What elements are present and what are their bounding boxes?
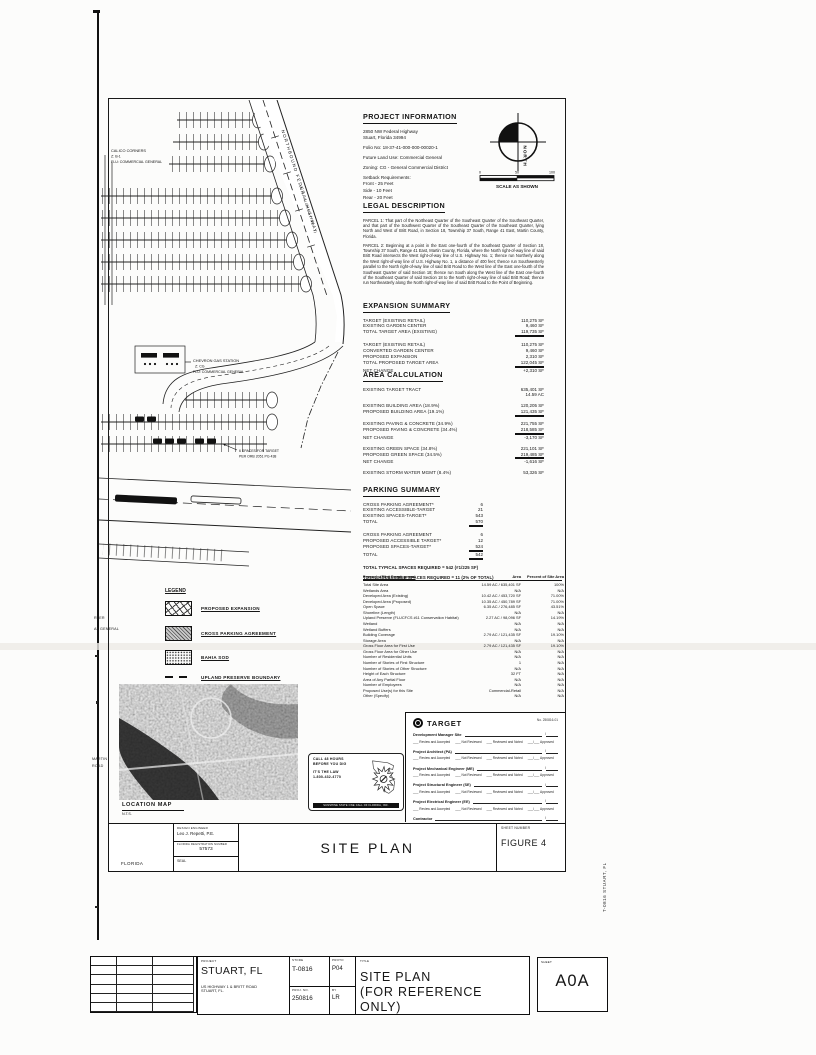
development-table: Property (Site) Development Area Percent… bbox=[363, 574, 562, 699]
revision-cell bbox=[153, 985, 194, 994]
summary-value: -1,616 SF bbox=[518, 459, 544, 465]
legal-description-section: LEGAL DESCRIPTION PARCEL 1: That part of… bbox=[363, 195, 544, 289]
summary-label: TOTAL bbox=[363, 519, 378, 527]
summary-group: EXISTING TARGET TRACT635,401 SF14.59 AC bbox=[363, 387, 544, 399]
scale-bar: 0 50 100 SCALE AS SHOWN bbox=[479, 171, 555, 190]
revision-cell bbox=[91, 985, 117, 994]
summary-group: EXISTING BUILDING AREA (18.9%)120,205 SF… bbox=[363, 403, 544, 417]
dev-table-row: Other (Specify)N/AN/A bbox=[363, 693, 562, 699]
north-arrow-icon: NORTH bbox=[490, 113, 546, 171]
revision-cell bbox=[153, 957, 194, 966]
calico-label-2: Z: B-1 bbox=[111, 155, 121, 159]
summary-label: EXISTING STORM WATER MGMT (8.4%) bbox=[363, 470, 451, 476]
location-map-caption: LOCATION MAP N.T.S. bbox=[122, 802, 184, 816]
summary-row: TOTAL TARGET AREA (EXISTING)119,735 SF bbox=[363, 329, 544, 337]
site-plan-drawing: NORTHBOUND FEDERAL HIGHWAY (U.S. HIGHWAY… bbox=[99, 100, 366, 592]
drawing-title-cell: TITLE SITE PLAN (FOR REFERENCE ONLY) bbox=[356, 957, 529, 1014]
summary-value: 121,435 SF bbox=[515, 409, 544, 417]
signoff-option: ___ Reviewed and Noted bbox=[487, 807, 523, 811]
scale-caption: SCALE AS SHOWN bbox=[496, 184, 539, 189]
sheet-id-box: SHEET A0A bbox=[537, 957, 608, 1012]
revision-cell bbox=[91, 957, 117, 966]
signoff-rows: Development Manager Site/___ Review and … bbox=[413, 733, 558, 828]
dev-header-percent: Percent of Site Area bbox=[524, 574, 564, 580]
revision-cell bbox=[91, 966, 117, 975]
revision-row bbox=[91, 1003, 196, 1012]
legend-item: PROPOSED EXPANSION bbox=[165, 601, 300, 616]
signoff-role-line: Development Manager Site/ bbox=[413, 733, 558, 737]
revision-row bbox=[91, 985, 196, 994]
signoff-role: Project Architect (PA) bbox=[413, 750, 452, 754]
revision-cell bbox=[153, 1003, 194, 1012]
summary-row: NET CHANGE-3,170 SF bbox=[363, 435, 544, 441]
scale-tick-50: 50 bbox=[515, 171, 519, 175]
legend-label: BAHIA SOD bbox=[201, 655, 229, 660]
revision-cell bbox=[91, 994, 117, 1003]
signoff-option: ___ Not Reviewed bbox=[455, 807, 481, 811]
signoff-role-line: Project Electrical Engineer (EE)/ bbox=[413, 800, 558, 804]
legend-item: UPLAND PRESERVE BOUNDARY bbox=[165, 675, 300, 680]
drawing-title-line1: SITE PLAN bbox=[360, 970, 525, 985]
store-cell: STORE T-0816 PROTO P04 PROJ. NO. 250816 … bbox=[290, 957, 356, 1014]
stipple-swatch bbox=[165, 650, 192, 665]
registration-label: FLORIDA REGISTRATION NUMBER bbox=[177, 843, 235, 846]
summary-value: -3,170 SF bbox=[518, 435, 544, 441]
legend-items: PROPOSED EXPANSIONCROSS PARKING AGREEMEN… bbox=[165, 601, 300, 680]
drawing-title-line2: (FOR REFERENCE ONLY) bbox=[360, 985, 525, 1015]
signoff-option: ___/___ Approved bbox=[528, 740, 554, 744]
diagonal-swatch bbox=[165, 626, 192, 641]
florida-sunburst-icon bbox=[363, 757, 401, 803]
north-label: NORTH bbox=[523, 146, 528, 167]
summary-group: CROSS PARKING AGREEMENT6PROPOSED ACCESSI… bbox=[363, 532, 483, 560]
signoff-option: ___ Reviewed and Noted bbox=[487, 773, 523, 777]
chevron-label-2: Z: CG bbox=[195, 365, 205, 369]
sheet-id-label: SHEET bbox=[541, 960, 604, 964]
signature-line bbox=[455, 752, 542, 754]
dev-header-area: Area bbox=[463, 574, 521, 580]
bottom-title-block: PROJECT STUART, FL US HIGHWAY 1 & BRITT … bbox=[197, 956, 530, 1015]
date-line bbox=[546, 819, 558, 821]
revision-row bbox=[91, 966, 196, 975]
dig-line-4: 1-800-432-4770 bbox=[313, 775, 363, 780]
registration-number: 57573 bbox=[177, 847, 235, 852]
dig-stamp-footer: SUNSHINE STATE ONE CALL OF FLORIDA, INC. bbox=[313, 803, 399, 808]
state-label: FLORIDA bbox=[121, 861, 143, 866]
sheet-number-cell: SHEET NUMBER FIGURE 4 bbox=[496, 824, 565, 871]
summary-label: PROPOSED BUILDING AREA (19.1%) bbox=[363, 409, 444, 417]
signoff-option: ___ Review and Accepted bbox=[413, 790, 450, 794]
revision-cell bbox=[117, 966, 153, 975]
signoff-role-line: Contractor/ bbox=[413, 817, 558, 821]
legend-label: UPLAND PRESERVE BOUNDARY bbox=[201, 675, 280, 680]
dev-row-label: Other (Specify) bbox=[363, 693, 460, 699]
britt-road bbox=[99, 478, 351, 566]
signoff-options: ___ Review and Accepted___ Not Reviewed_… bbox=[413, 807, 558, 811]
by-initials: LR bbox=[332, 995, 353, 1001]
dig-stamp-text: CALL 48 HOURS BEFORE YOU DIG IT'S THE LA… bbox=[313, 757, 363, 808]
summary-group: CROSS PARKING AGREEMENT*6EXISTING ACCESS… bbox=[363, 502, 483, 528]
date-line bbox=[546, 735, 558, 737]
summary-value: 53,326 SF bbox=[517, 470, 544, 476]
signoff-option: ___/___ Approved bbox=[528, 790, 554, 794]
area-calculation-heading: AREA CALCULATION bbox=[363, 370, 443, 382]
summary-row: EXISTING STORM WATER MGMT (8.4%)53,326 S… bbox=[363, 470, 544, 476]
dev-row-area: N/A bbox=[463, 693, 521, 699]
summary-row: TOTAL542 bbox=[363, 552, 483, 560]
signoff-option: ___/___ Approved bbox=[528, 756, 554, 760]
revision-cell bbox=[153, 994, 194, 1003]
revision-cell bbox=[91, 1003, 117, 1012]
engineer-cell: DESIGN ENGINEER Leo J. Repetti, P.E. FLO… bbox=[173, 824, 239, 871]
signature-line bbox=[474, 785, 542, 787]
summary-label: TOTAL bbox=[363, 552, 378, 560]
dig-stamp: CALL 48 HOURS BEFORE YOU DIG IT'S THE LA… bbox=[308, 753, 404, 811]
summary-value: 524 bbox=[469, 544, 483, 552]
location-map bbox=[119, 684, 298, 800]
sheet-number: FIGURE 4 bbox=[501, 838, 561, 848]
summary-row: NET CHANGE-1,616 SF bbox=[363, 459, 544, 465]
dev-row-percent: N/A bbox=[524, 693, 564, 699]
parking-summary-rows: CROSS PARKING AGREEMENT*6EXISTING ACCESS… bbox=[363, 502, 483, 560]
summary-group: EXISTING GREEN SPACE (34.8%)221,101 SFPR… bbox=[363, 446, 544, 466]
revision-row bbox=[91, 994, 196, 1003]
signoff-role: Contractor bbox=[413, 817, 432, 821]
parking-summary-section: PARKING SUMMARY CROSS PARKING AGREEMENT*… bbox=[363, 479, 544, 580]
signoff-role: Project Structural Engineer (SE) bbox=[413, 783, 471, 787]
legend-heading: LEGEND bbox=[165, 588, 300, 594]
signoff-option: ___ Not Reviewed bbox=[455, 773, 481, 777]
area-calculation-section: AREA CALCULATION EXISTING TARGET TRACT63… bbox=[363, 364, 544, 480]
scanned-site-plan-sheet: NORTHBOUND FEDERAL HIGHWAY (U.S. HIGHWAY… bbox=[0, 0, 816, 1055]
location-map-scale: N.T.S. bbox=[122, 810, 184, 816]
store-no-label: STORE bbox=[292, 958, 327, 962]
summary-value: 218,585 SF bbox=[515, 427, 544, 435]
signoff-role: Project Mechanical Engineer (ME) bbox=[413, 767, 474, 771]
legend-label: CROSS PARKING AGREEMENT bbox=[201, 631, 276, 636]
project-address: US HIGHWAY 1 & BRITT ROAD STUART, FL. bbox=[201, 985, 286, 995]
summary-label: NET CHANGE bbox=[363, 459, 393, 465]
date-line bbox=[546, 752, 558, 754]
signature-line bbox=[435, 819, 542, 821]
signoff-row: Project Mechanical Engineer (ME)/___ Rev… bbox=[413, 767, 558, 778]
signoff-role-line: Project Architect (PA)/ bbox=[413, 750, 558, 754]
state-cell: FLORIDA bbox=[109, 824, 173, 871]
summary-label: PROPOSED PAVING & CONCRETE (34.4%) bbox=[363, 427, 457, 435]
revision-cell bbox=[153, 975, 194, 984]
summary-value: 542 bbox=[469, 552, 483, 560]
chevron-label-1: CHEVRON GAS STATION bbox=[193, 358, 239, 363]
revision-grid bbox=[90, 956, 197, 1013]
signoff-option: ___ Review and Accepted bbox=[413, 807, 450, 811]
engineer-name: Leo J. Repetti, P.E. bbox=[177, 831, 235, 836]
location-map-image bbox=[119, 684, 298, 800]
signoff-option: ___ Not Reviewed bbox=[455, 790, 481, 794]
signoff-option: ___ Not Reviewed bbox=[455, 740, 481, 744]
signoff-option: ___ Review and Accepted bbox=[413, 773, 450, 777]
parking-note: TOTAL TYPICAL SPACES REQUIRED = 542 (#1/… bbox=[363, 565, 544, 570]
signoff-row: Project Structural Engineer (SE)/___ Rev… bbox=[413, 783, 558, 794]
seal-label: SEAL bbox=[174, 857, 238, 865]
target-signoff-block: TARGET No. 250816-01 Development Manager… bbox=[405, 712, 565, 822]
signoff-role: Project Electrical Engineer (EE) bbox=[413, 800, 470, 804]
target-brand-name: TARGET bbox=[427, 719, 462, 728]
margin-vertical-text: T-0816 STUART, FL bbox=[602, 852, 607, 912]
cut-label: RTER bbox=[94, 616, 105, 620]
project-cell: PROJECT STUART, FL US HIGHWAY 1 & BRITT … bbox=[198, 957, 290, 1014]
date-line bbox=[546, 769, 558, 771]
revision-cell bbox=[153, 966, 194, 975]
calico-label-1: CALICO CORNERS bbox=[111, 148, 146, 153]
signoff-row: Project Architect (PA)/___ Review and Ac… bbox=[413, 750, 558, 761]
signoff-option: ___ Reviewed and Noted bbox=[487, 756, 523, 760]
sheet-title-strip: FLORIDA DESIGN ENGINEER Leo J. Repetti, … bbox=[108, 823, 566, 872]
engineer-label: DESIGN ENGINEER bbox=[177, 826, 235, 830]
signoff-option: ___ Not Reviewed bbox=[455, 756, 481, 760]
signoff-option: ___ Review and Accepted bbox=[413, 756, 450, 760]
legal-parcel-1: PARCEL 1: That part of the Northeast Qua… bbox=[363, 218, 544, 240]
scan-speck bbox=[95, 655, 98, 657]
project-city: STUART, FL bbox=[201, 965, 286, 977]
signoff-role-line: Project Mechanical Engineer (ME)/ bbox=[413, 767, 558, 771]
summary-row: PROPOSED GREEN SPACE (34.5%)219,485 SF bbox=[363, 452, 544, 460]
project-information-heading: PROJECT INFORMATION bbox=[363, 112, 457, 124]
summary-row: PROPOSED BUILDING AREA (19.1%)121,435 SF bbox=[363, 409, 544, 417]
cut-label: MARTIN bbox=[92, 757, 107, 761]
summary-value: 219,485 SF bbox=[515, 452, 544, 460]
legend-item: CROSS PARKING AGREEMENT bbox=[165, 626, 300, 641]
signature-line bbox=[477, 769, 542, 771]
expansion-summary-heading: EXPANSION SUMMARY bbox=[363, 301, 450, 313]
chevron-label-3: FLU: COMMERCIAL GENERAL bbox=[193, 370, 244, 374]
signoff-options: ___ Review and Accepted___ Not Reviewed_… bbox=[413, 790, 558, 794]
revision-row bbox=[91, 975, 196, 984]
revision-cell bbox=[117, 1003, 153, 1012]
sheet-id: A0A bbox=[541, 972, 604, 991]
project-number-label: PROJ. NO. bbox=[292, 988, 327, 992]
revision-cell bbox=[117, 994, 153, 1003]
signoff-options: ___ Review and Accepted___ Not Reviewed_… bbox=[413, 773, 558, 777]
project-address-line2: STUART, FL. bbox=[201, 989, 286, 994]
calico-label-3: FLU: COMMERCIAL GENERAL bbox=[111, 160, 162, 164]
signoff-role: Development Manager Site bbox=[413, 733, 462, 737]
revision-cell bbox=[91, 975, 117, 984]
summary-row: TOTAL570 bbox=[363, 519, 483, 527]
summary-value: 570 bbox=[469, 519, 483, 527]
signoff-row: Project Electrical Engineer (EE)/___ Rev… bbox=[413, 800, 558, 811]
legal-parcel-2: PARCEL 2: Beginning at a point in the Ea… bbox=[363, 243, 544, 286]
cut-label: AL GENERAL bbox=[94, 627, 119, 631]
summary-value: 119,735 SF bbox=[515, 329, 544, 337]
signoff-options: ___ Review and Accepted___ Not Reviewed_… bbox=[413, 756, 558, 760]
summary-group: TARGET (EXISTING RETAIL)110,275 SFEXISTI… bbox=[363, 318, 544, 338]
revision-row bbox=[91, 957, 196, 966]
scan-mark bbox=[93, 10, 100, 13]
signoff-options: ___ Review and Accepted___ Not Reviewed_… bbox=[413, 740, 558, 744]
signature-line bbox=[473, 802, 542, 804]
signature-line bbox=[465, 735, 542, 737]
gas-station bbox=[135, 346, 191, 373]
signoff-option: ___/___ Approved bbox=[528, 807, 554, 811]
target-spaces-label-1: 6 SPACES FOR TARGET bbox=[239, 449, 280, 453]
signoff-role-line: Project Structural Engineer (SE)/ bbox=[413, 783, 558, 787]
summary-label: PROPOSED GREEN SPACE (34.5%) bbox=[363, 452, 442, 460]
cut-label: ROAD bbox=[92, 764, 103, 768]
dev-table-header: Property (Site) Development Area Percent… bbox=[363, 574, 562, 581]
scale-tick-100: 100 bbox=[549, 171, 555, 175]
scan-speck bbox=[95, 906, 98, 908]
summary-row: 14.59 AC bbox=[363, 392, 544, 398]
summary-group: EXISTING PAVING & CONCRETE (34.9%)221,75… bbox=[363, 421, 544, 441]
parking-summary-heading: PARKING SUMMARY bbox=[363, 485, 440, 497]
summary-label: EXISTING TARGET TRACT bbox=[363, 387, 421, 393]
drawing-title-label: TITLE bbox=[360, 959, 525, 963]
legend: LEGEND PROPOSED EXPANSIONCROSS PARKING A… bbox=[165, 588, 300, 689]
legend-label: PROPOSED EXPANSION bbox=[201, 606, 260, 611]
sheet-title-cell: SITE PLAN bbox=[239, 824, 496, 871]
scale-tick-0: 0 bbox=[479, 171, 481, 175]
dev-header-property: Property (Site) Development bbox=[363, 574, 460, 580]
project-number: 250816 bbox=[292, 995, 327, 1002]
date-line bbox=[546, 802, 558, 804]
parking-rows-lower bbox=[101, 392, 278, 452]
dashline-swatch bbox=[165, 676, 192, 678]
location-map-label: LOCATION MAP bbox=[122, 802, 184, 808]
target-ref-number: No. 250816-01 bbox=[537, 718, 558, 722]
summary-row: PROPOSED SPACES-TARGET*524 bbox=[363, 544, 483, 552]
proto-label: PROTO bbox=[332, 958, 353, 962]
target-spaces-label-2: PER ORB 2051 PG 438 bbox=[239, 455, 276, 459]
sheet-title: SITE PLAN bbox=[320, 840, 414, 856]
revision-cell bbox=[117, 975, 153, 984]
area-calculation-rows: EXISTING TARGET TRACT635,401 SF14.59 ACE… bbox=[363, 387, 544, 476]
revision-cell bbox=[117, 957, 153, 966]
legal-description-heading: LEGAL DESCRIPTION bbox=[363, 201, 445, 213]
signoff-option: ___ Review and Accepted bbox=[413, 740, 450, 744]
summary-value: 14.59 AC bbox=[519, 392, 544, 398]
date-line bbox=[546, 785, 558, 787]
target-brand-row: TARGET No. 250816-01 bbox=[413, 718, 558, 728]
signoff-option: ___ Reviewed and Noted bbox=[487, 740, 523, 744]
crosshatch-swatch bbox=[165, 601, 192, 616]
summary-label: NET CHANGE bbox=[363, 435, 393, 441]
by-label: BY bbox=[332, 988, 353, 992]
summary-label: TOTAL TARGET AREA (EXISTING) bbox=[363, 329, 437, 337]
sheet-number-label: SHEET NUMBER bbox=[501, 826, 561, 830]
summary-group: EXISTING STORM WATER MGMT (8.4%)53,326 S… bbox=[363, 470, 544, 476]
dev-table-rows: Total Site Area14.59 AC / 635,401 SF100%… bbox=[363, 582, 562, 699]
scan-speck bbox=[96, 701, 98, 704]
proto-number: P04 bbox=[332, 966, 353, 972]
signoff-option: ___/___ Approved bbox=[528, 773, 554, 777]
signoff-row: Development Manager Site/___ Review and … bbox=[413, 733, 558, 744]
store-number: T-0816 bbox=[292, 966, 327, 973]
summary-label: PROPOSED SPACES-TARGET* bbox=[363, 544, 431, 552]
signoff-option: ___ Reviewed and Noted bbox=[487, 790, 523, 794]
project-cell-label: PROJECT bbox=[201, 959, 286, 963]
target-logo-icon bbox=[413, 718, 423, 728]
north-arrow-and-scale: NORTH 0 50 100 SCALE AS SHOWN bbox=[478, 105, 566, 197]
legend-item: BAHIA SOD bbox=[165, 650, 300, 665]
summary-row: PROPOSED PAVING & CONCRETE (34.4%)218,58… bbox=[363, 427, 544, 435]
revision-cell bbox=[117, 985, 153, 994]
